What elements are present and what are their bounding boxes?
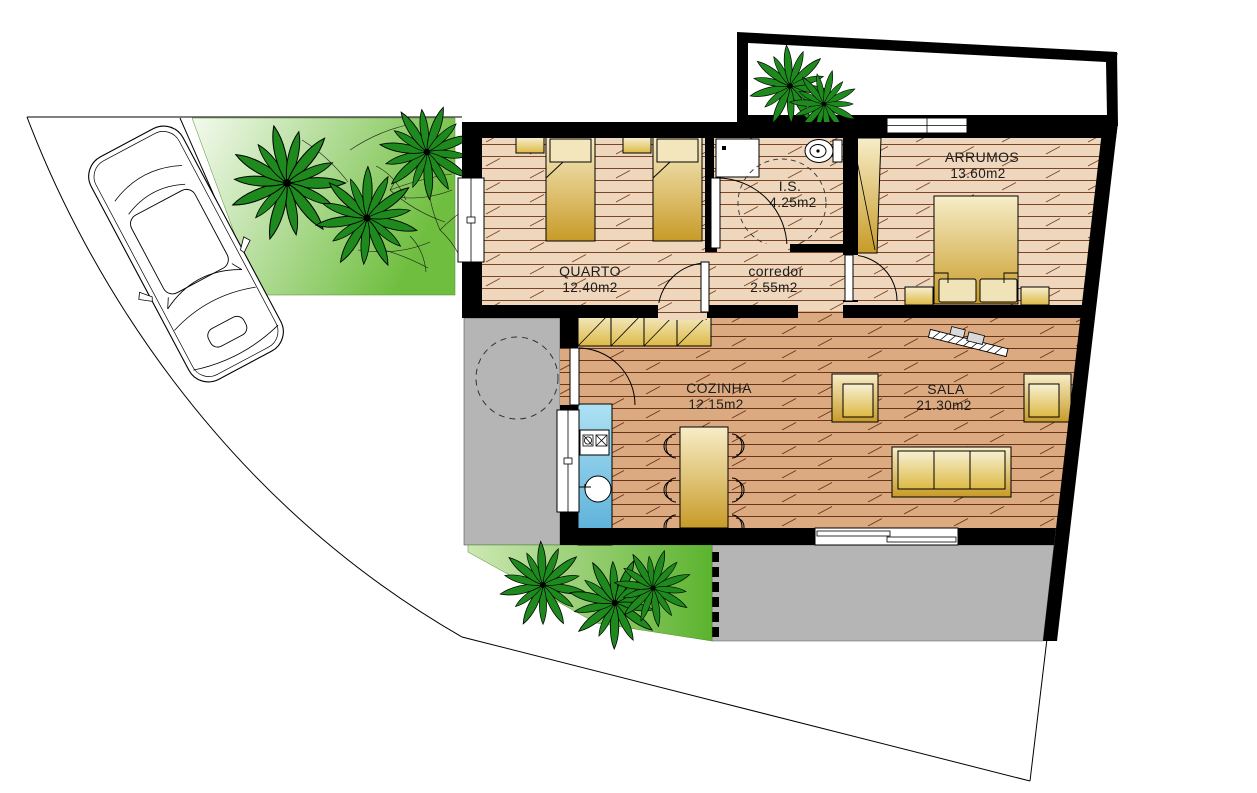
bedroom-window <box>458 178 484 262</box>
entrance-door-leaf <box>570 348 579 405</box>
nightstand <box>623 137 651 153</box>
kitchen-window <box>557 410 579 512</box>
kitchen-counter <box>578 404 612 545</box>
room-area-arrumos: 13.60m2 <box>950 166 1005 181</box>
toilet <box>805 140 842 163</box>
shower-tray <box>716 139 759 177</box>
room-area-is: 4.25m2 <box>769 195 816 210</box>
bathroom-door-leaf <box>711 178 720 248</box>
bed-pillow <box>980 279 1017 302</box>
room-label-is: I.S. <box>779 178 802 194</box>
room-area-cozinha: 12.15m2 <box>688 397 743 412</box>
bed-pillow <box>657 139 698 162</box>
floor-plan-canvas: QUARTO 12.40m2 I.S. 4.25m2 corredor 2.55… <box>0 0 1257 793</box>
room-area-quarto: 12.40m2 <box>562 280 617 295</box>
wall-top <box>462 122 1118 138</box>
nightstand <box>905 287 933 305</box>
bedroom-door-leaf <box>701 262 709 312</box>
stove <box>580 430 609 455</box>
rear-patio <box>706 545 1054 641</box>
room-area-sala: 21.30m2 <box>916 398 971 413</box>
shower-drain <box>722 146 726 150</box>
wall-middle <box>462 305 1083 318</box>
nightstand <box>1021 287 1049 305</box>
dining-table <box>680 427 728 528</box>
room-label-cozinha: COZINHA <box>686 380 752 396</box>
bed-pillow <box>550 139 591 162</box>
storage-door-leaf <box>845 255 853 301</box>
room-label-arrumos: ARRUMOS <box>945 149 1019 165</box>
bed-pillow <box>939 279 976 302</box>
wall-bottom <box>560 528 1056 545</box>
kitchen-sink <box>585 476 611 502</box>
room-area-corredor: 2.55m2 <box>750 280 797 295</box>
sliding-door <box>815 528 958 545</box>
room-label-sala: SALA <box>927 381 965 397</box>
side-patio <box>464 318 560 545</box>
room-label-quarto: QUARTO <box>559 263 621 279</box>
nightstand <box>516 137 544 153</box>
storage-window <box>887 118 967 133</box>
rear-garden <box>468 535 712 659</box>
room-label-corredor: corredor <box>748 263 803 279</box>
